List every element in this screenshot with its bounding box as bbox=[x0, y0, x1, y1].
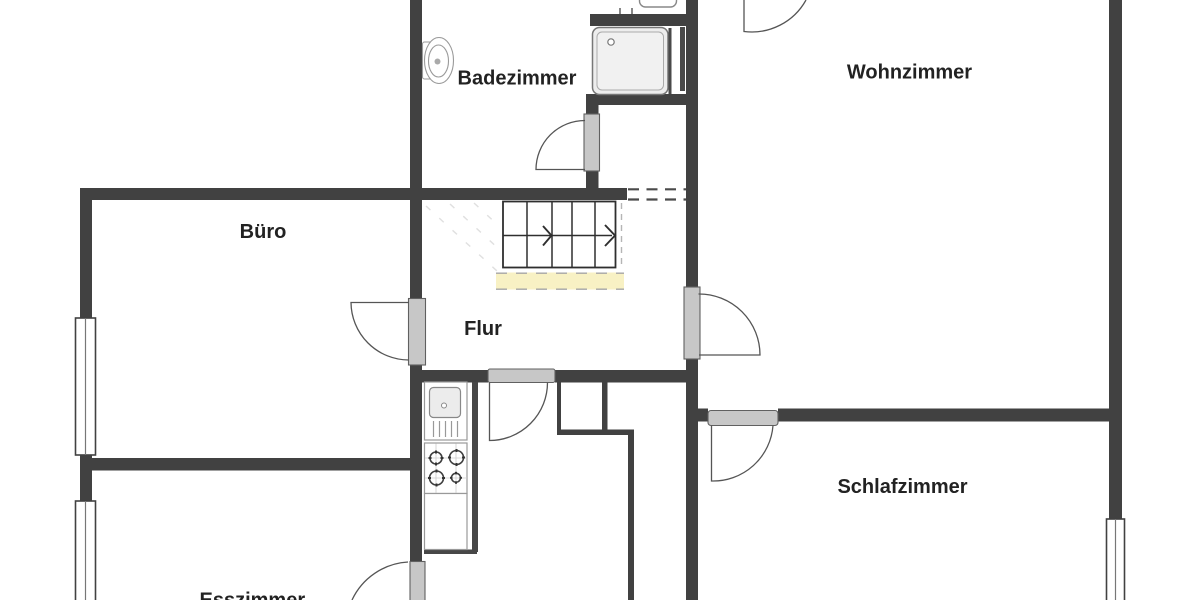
svg-text:Wohnzimmer: Wohnzimmer bbox=[847, 62, 972, 84]
svg-text:Esszimmer: Esszimmer bbox=[199, 590, 305, 600]
svg-text:Flur: Flur bbox=[464, 318, 502, 340]
svg-text:Schlafzimmer: Schlafzimmer bbox=[837, 476, 967, 498]
svg-text:Büro: Büro bbox=[240, 221, 287, 243]
svg-text:Badezimmer: Badezimmer bbox=[458, 68, 577, 90]
